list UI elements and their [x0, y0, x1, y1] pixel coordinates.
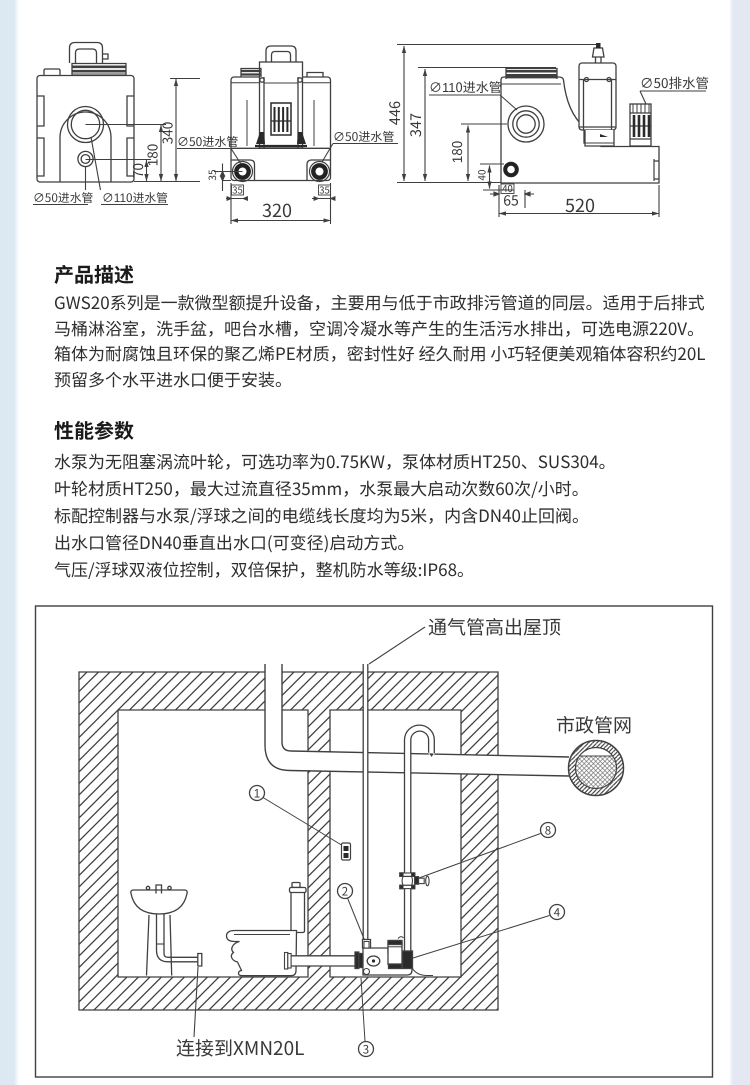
svg-text:40: 40	[474, 169, 489, 181]
svg-text:∅110进水管: ∅110进水管	[429, 77, 502, 96]
svg-text:180: 180	[142, 144, 162, 167]
svg-text:连接到XMN20L: 连接到XMN20L	[176, 1034, 304, 1061]
svg-text:340: 340	[157, 122, 177, 144]
svg-text:∅50进水管: ∅50进水管	[33, 189, 93, 206]
svg-text:4: 4	[554, 905, 561, 921]
svg-text:70: 70	[127, 163, 147, 178]
svg-text:446: 446	[384, 101, 405, 125]
svg-text:市政管网: 市政管网	[556, 711, 632, 738]
svg-text:3: 3	[363, 1042, 369, 1058]
svg-text:通气管高出屋顶: 通气管高出屋顶	[428, 613, 561, 640]
svg-text:8: 8	[545, 823, 551, 839]
svg-text:2: 2	[342, 884, 348, 900]
svg-text:347: 347	[405, 113, 426, 137]
svg-text:520: 520	[565, 192, 595, 218]
svg-text:35: 35	[204, 169, 219, 181]
svg-text:35: 35	[232, 183, 243, 197]
svg-text:180: 180	[446, 141, 466, 164]
svg-text:∅50进水管: ∅50进水管	[177, 133, 238, 150]
svg-text:40: 40	[502, 181, 513, 195]
svg-text:320: 320	[262, 197, 292, 223]
svg-text:∅50排水管: ∅50排水管	[640, 72, 709, 92]
svg-text:∅110进水管: ∅110进水管	[102, 189, 168, 206]
svg-text:1: 1	[254, 786, 260, 802]
svg-text:35: 35	[319, 183, 330, 197]
svg-text:∅50进水管: ∅50进水管	[333, 128, 394, 145]
